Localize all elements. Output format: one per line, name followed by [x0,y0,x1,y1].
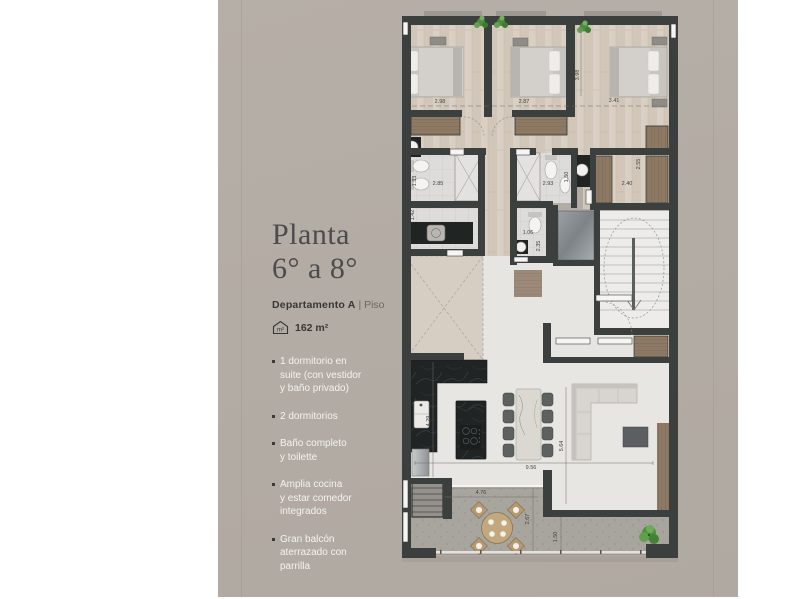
nightstand [430,37,446,45]
dim-toilette-width: 1.06 [523,230,534,236]
dim-bedroom3-depth: 3.98 [575,70,581,81]
round-table [482,513,513,544]
dim-bedroom2: 2.87 [519,99,530,105]
wardrobe [515,114,567,135]
dim-terrace-right: 1.50 [553,532,559,543]
toilet [545,161,557,179]
bedroom-1 [405,37,463,135]
brochure-page: Planta 6° a 8° Departamento A | Piso m² … [0,0,800,599]
parrilla-grill [412,482,443,517]
tv-unit [623,427,648,447]
fridge [412,449,429,476]
dim-bedroom3: 3.41 [609,98,620,104]
dim-bath1-width: 2.85 [433,181,444,187]
floor-plan: 2.98 2.87 3.41 3.98 1.33 2.85 2.93 1.50 … [0,0,800,599]
dim-bath2-width: 2.93 [543,181,554,187]
dim-vestidor-depth: 2.55 [636,159,642,170]
dim-terrace-depth: 2.67 [525,514,531,525]
terrace-railing [409,551,670,554]
entry-wood-mat [514,270,542,297]
hall-shelf [634,336,668,357]
sink [516,242,526,252]
dim-living-width: 9.56 [526,465,537,471]
plan-ground-shadow [402,556,678,562]
void-room [405,256,483,360]
nightstand [652,37,667,45]
dim-bedroom1: 2.98 [435,99,446,105]
bedroom-2 [511,38,568,135]
dim-vestidor-width: 2.40 [622,181,633,187]
kitchen-island [456,401,486,459]
bed-icon [405,47,463,97]
dim-terrace-width: 4.76 [476,490,487,496]
dining-table [516,389,541,460]
sink [576,164,588,176]
bed-icon [511,47,568,97]
toilet [413,160,429,172]
dim-living-depth: 5.64 [559,441,565,452]
shower [514,153,540,201]
dim-kitchen: 4.29 [426,416,432,427]
dim-laundry: 1.42 [410,210,416,221]
elevator-shaft [558,211,594,260]
nightstand [513,38,528,46]
dim-bath1-depth: 1.33 [412,176,418,187]
bed-icon [610,47,667,97]
washer [427,225,445,241]
laundry [405,222,473,244]
dim-toilette-depth: 2.35 [536,241,542,252]
wardrobe [411,114,460,135]
dim-bath2-depth: 1.50 [564,172,570,183]
wood-deck-strip [657,423,669,515]
